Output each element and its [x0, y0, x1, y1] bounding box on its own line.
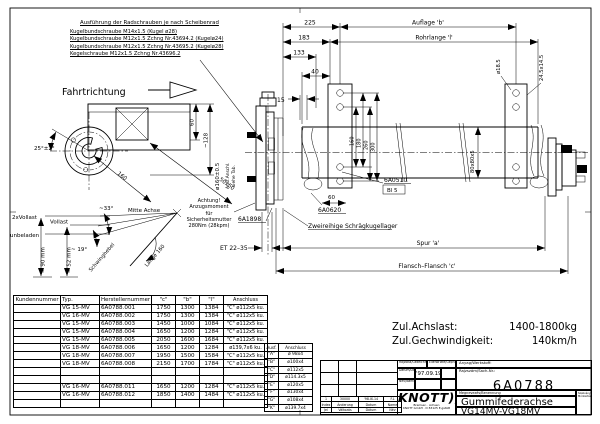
table-cell: 1750 [152, 312, 176, 320]
table-cell: 1650 [152, 328, 176, 336]
drawing-number-label: Rajzszám/Sach-Nr.: [457, 369, 591, 374]
table-cell: "F" [265, 389, 279, 397]
table-cell: 6A0788.004 [100, 328, 152, 336]
wheel-bolt-note-line: Kegelschraube M12x1.5 Zchng Nr.43696.2 [70, 51, 260, 58]
table-cell: 1450 [152, 320, 176, 328]
axle-load-label: Zul.Achslast: [392, 322, 457, 336]
column-header: "c" [152, 296, 176, 305]
empty-cell [441, 379, 456, 390]
dim-et-label: ET 22–35 [220, 245, 248, 252]
table-cell: 1850 [152, 391, 176, 399]
date-label: Dátum/Date [397, 368, 415, 379]
title-block-divider [338, 360, 339, 396]
table-row: VG 15-MV6A0788.003145010001084"C" ø112x5… [14, 320, 268, 328]
table-cell: ø130x4 [279, 389, 313, 397]
table-cell: 1650 [152, 344, 176, 352]
table-cell: 1784 [200, 360, 224, 368]
dim-dia18-label: ø18.5 [496, 59, 502, 74]
column-header: Anschluss [224, 296, 268, 305]
axle-load-row: Zul.Achslast: 1400-1800kg [392, 322, 577, 336]
table-cell: 1950 [152, 352, 176, 360]
table-cell: "C" ø112x5 ku. [224, 391, 268, 399]
hub-cross-section [234, 92, 287, 256]
torque-warning-line: 280Nm (28kpm) [181, 223, 237, 229]
table-cell: ø112x5 [279, 366, 313, 374]
table-row: VG 16-MV6A0788.011165012001284"C" ø112x5… [14, 383, 268, 391]
speed-value: 140km/h [532, 336, 577, 350]
table-cell: 1500 [176, 352, 200, 360]
dim-160-diagonal-label: 160 [116, 171, 128, 183]
schwinghebel-label: Schwinghebel [88, 242, 116, 273]
column-header: "l" [200, 296, 224, 305]
table-cell: VG 18-MV [61, 352, 100, 360]
table-cell [224, 399, 268, 407]
dim-180v-label: 180 [357, 138, 363, 148]
table-cell: "E" [265, 381, 279, 389]
empty-cell [415, 379, 441, 390]
table-cell [224, 376, 268, 384]
table-cell: ø120x5 [279, 381, 313, 389]
dim-19deg-label: ~ 19° [71, 247, 87, 253]
table-cell: VG 15-MV [61, 305, 100, 313]
table-cell: 6A0788.003 [100, 320, 152, 328]
table-row: "B"ø100x4 [265, 359, 313, 367]
table-cell: "G" [265, 397, 279, 405]
side-label-2: Módosítás [578, 395, 590, 398]
bearing-label: Zweireihige Schrägkugellager [308, 223, 398, 230]
part-6a0620-label: 6A0620 [318, 207, 341, 214]
torque-warning-line: Anzugsmoment [181, 204, 237, 210]
table-cell: 6A0788.001 [100, 305, 152, 313]
table-cell: Index [321, 402, 332, 407]
dim-90mm-label: ≈ 90 mm [41, 247, 47, 273]
dim-slot-label: 24.5x14.5 [539, 55, 545, 81]
rohrlange-l-label: Rohrlange 'l' [415, 35, 453, 42]
header-row: Ausf.Anschluss [265, 344, 313, 352]
torque-warning-note: Achtung!AnzugsmomentfürSicherheitsmutter… [181, 198, 237, 229]
table-cell: VG 18-MV [61, 360, 100, 368]
table-cell: 1700 [176, 360, 200, 368]
table-row: VG 18-MV6A0788.007195015001584"C" ø112x5… [14, 352, 268, 360]
table-row: "F"ø130x4 [265, 389, 313, 397]
table-cell: 1284 [200, 328, 224, 336]
dim-128-label: ~128 [204, 132, 210, 148]
dim-60-label: 60 [190, 119, 196, 126]
spec-block: Zul.Achslast: 1400-1800kg Zul.Gechwindig… [392, 322, 577, 350]
mitte-achse-label: Mitte Achse [128, 208, 161, 214]
table-cell: 1600 [176, 336, 200, 344]
ausf-ref-line1: Ausf.Anschl. [225, 162, 231, 189]
axle-load-value: 1400-1800kg [509, 322, 577, 336]
column-header: "b" [176, 296, 200, 305]
revision-table-grid: 130000'98.IX.14F.LIndexÄnderungDatumName… [320, 396, 402, 413]
table-row: VG 18-MV6A0788.006165012001284ø139,7x6 k… [14, 344, 268, 352]
table-cell: "C" ø112x5 ku. [224, 312, 268, 320]
drawn-by-label: Rajzolta/Gezeichnet [397, 360, 427, 368]
spur-a-label: Spur 'a' [417, 240, 440, 247]
table-cell: "C" ø112x5 ku. [224, 336, 268, 344]
blatt-5-label: Bl 5 [387, 188, 398, 194]
table-row: VG 18-MV6A0788.008215017001784"C" ø112x5… [14, 360, 268, 368]
table-cell: 1300 [176, 305, 200, 313]
table-cell: "C" ø112x5 ku. [224, 383, 268, 391]
table-cell: "C" [265, 366, 279, 374]
brand-subline-2: KNOTT GmbH · D 83125 E,gstätt [398, 407, 455, 410]
speed-label: Zul.Gechwindigkeit: [392, 336, 493, 350]
laenge-160-label: Länge 160 [144, 244, 167, 269]
table-cell: 1300 [176, 312, 200, 320]
table-cell [152, 399, 176, 407]
table-cell: VG 16-MV [61, 383, 100, 391]
empty-cell [441, 368, 456, 379]
wheel-bolt-note-line: Kugelbundschraube M14x1.5 (Kugel ø28) [70, 29, 260, 36]
wheel-bolt-note-line: Kugelbundschraube M12x1.5 Zchng Nr.43695… [70, 44, 260, 51]
dim-52mm-label: ≈ 52 mm [67, 247, 73, 273]
anschluss-variants-table-grid: Ausf.Anschluss"A"ø 98x4"B"ø100x4"C"ø112x… [264, 343, 313, 412]
table-cell [14, 320, 61, 328]
wheel-bolt-note-line: Kugelbundschraube M12x1.5 Zchng Nr.43694… [70, 36, 260, 43]
table-cell: "C" ø112x5 ku. [224, 320, 268, 328]
column-header: Herstellernummer [100, 296, 152, 305]
table-cell: VG 15-MV [61, 320, 100, 328]
dim-dia160-label: ø160±0.5 [215, 162, 221, 190]
table-cell [61, 368, 100, 376]
dim-40-label: 40 [311, 69, 319, 76]
table-cell: 6A0788.012 [100, 391, 152, 399]
table-cell [14, 336, 61, 344]
table-cell: VG 16-MV [61, 391, 100, 399]
ausf-ref-line2: siehe Tab. [231, 165, 237, 187]
brand-cell: KNOTT))) Bremsen · Achsen KNOTT GmbH · D… [397, 390, 456, 415]
auflage-b-label: Auflage 'b' [412, 20, 444, 27]
table-cell: 1284 [200, 344, 224, 352]
table-cell: "A" [265, 351, 279, 359]
table-cell: "C" ø112x5 ku. [224, 352, 268, 360]
dim-225-label: 225 [304, 20, 316, 27]
table-cell [14, 305, 61, 313]
side-column-cell: Szabványosítás Módosítás [576, 390, 592, 415]
vollast2-label: 2xVollast [12, 215, 38, 221]
table-cell [224, 368, 268, 376]
table-cell: 6A0788.002 [100, 312, 152, 320]
table-cell [176, 376, 200, 384]
table-cell: 6A0788.005 [100, 336, 152, 344]
table-cell: 2150 [152, 360, 176, 368]
fahrtrichtung-label: Fahrtrichtung [62, 87, 126, 98]
table-row [14, 368, 268, 376]
table-cell: "D" [265, 374, 279, 382]
table-cell: 1684 [200, 336, 224, 344]
table-cell: 6A0788.007 [100, 352, 152, 360]
table-cell: ø108x4 [279, 397, 313, 405]
table-cell: 1384 [200, 305, 224, 313]
table-cell [200, 399, 224, 407]
title-block-divider [320, 372, 397, 373]
table-row: VG 15-MV6A0788.004165012001284"C" ø112x5… [14, 328, 268, 336]
table-cell: "C" ø112x5 ku. [224, 305, 268, 313]
knott-logo-arcs-icon: ))) [449, 390, 456, 405]
revision-table: 130000'98.IX.14F.LIndexÄnderungDatumName… [320, 396, 402, 413]
table-cell: VG 15-MV [61, 328, 100, 336]
speed-row: Zul.Gechwindigkeit: 140km/h [392, 336, 577, 350]
material-label: Anyag/Werkstoff: [456, 360, 592, 368]
anschluss-variants-table: Ausf.Anschluss"A"ø 98x4"B"ø100x4"C"ø112x… [264, 343, 313, 412]
title-block-divider [356, 360, 357, 396]
table-cell: ø 98x4 [279, 351, 313, 359]
table-cell: Változás [332, 407, 359, 412]
table-cell: "B" [265, 359, 279, 367]
vollast-label: Vollast [50, 220, 69, 226]
table-cell [100, 368, 152, 376]
table-cell: 1200 [176, 328, 200, 336]
flansch-c-label: Flansch–Flansch 'c' [398, 263, 456, 270]
table-cell [14, 360, 61, 368]
dim-tube80-label: 80x80x5 [470, 150, 476, 173]
table-cell [14, 376, 61, 384]
table-row: "K"ø139.7x4 [265, 404, 313, 412]
axle-variants-table-grid: KundennummerTyp.Herstellernummer"c""b""l… [13, 295, 268, 408]
table-cell: ø139,7x6 ku. [224, 344, 268, 352]
table-cell: 1200 [176, 344, 200, 352]
date-value: '97.09.19 [415, 368, 441, 379]
table-cell: 6A0788.006 [100, 344, 152, 352]
wheel-bolt-note-lines: Kugelbundschraube M14x1.5 (Kugel ø28)Kug… [70, 29, 260, 58]
table-row: VG 15-MV6A0788.005205016001684"C" ø112x5… [14, 336, 268, 344]
type-range-value: VG14MV-VG18MV [456, 407, 576, 415]
drawing-sheet: Fahrtrichtung 60 ~128 160 50x50 25°±2° 2… [0, 0, 600, 424]
table-cell [200, 376, 224, 384]
header-row: KundennummerTyp.Herstellernummer"c""b""l… [14, 296, 268, 305]
table-cell: VG 16-MV [61, 312, 100, 320]
checked-by-label: Ellenőrizte/Geprüft [427, 360, 456, 368]
dim-60b-label: 60 [328, 195, 335, 201]
table-row: "E"ø120x5 [265, 381, 313, 389]
table-cell [152, 376, 176, 384]
table-cell [61, 376, 100, 384]
table-cell [176, 399, 200, 407]
table-cell: 1200 [176, 383, 200, 391]
dim-25deg-label: 25°±2° [34, 146, 55, 152]
table-cell: 6A0788.011 [100, 383, 152, 391]
table-cell: 1650 [152, 383, 176, 391]
table-cell [61, 399, 100, 407]
table-cell: VG 15-MV [61, 336, 100, 344]
table-cell: 1584 [200, 352, 224, 360]
table-cell [14, 368, 61, 376]
wheel-bolt-note-title: Ausführung der Radschrauben je nach Sche… [80, 20, 260, 27]
unbeladen-label: unbeladen [10, 233, 40, 239]
dim-300v-label: 300 [371, 142, 377, 152]
table-cell: 1284 [200, 383, 224, 391]
table-cell: 1750 [152, 305, 176, 313]
table-row: "A"ø 98x4 [265, 351, 313, 359]
table-row: JelVáltozásDátumNév [321, 407, 402, 412]
table-cell [176, 368, 200, 376]
table-row [14, 399, 268, 407]
dim-183-label: 183 [298, 35, 310, 42]
dim-260v-label: 260 [364, 140, 370, 150]
table-cell: "C" ø112x5 ku. [224, 360, 268, 368]
table-row: "C"ø112x5 [265, 366, 313, 374]
note-leader-lines [200, 60, 263, 142]
column-header: Kundennummer [14, 296, 61, 305]
dim-133-label: 133 [293, 50, 305, 57]
table-cell: ø100x4 [279, 359, 313, 367]
table-cell [14, 383, 61, 391]
table-cell: Dátum [359, 407, 384, 412]
table-cell [14, 352, 61, 360]
drawing-number-cell: Rajzszám/Sach-Nr.: 6A0788 [456, 368, 592, 390]
table-row [14, 376, 268, 384]
table-row: VG 15-MV6A0788.001175013001384"C" ø112x5… [14, 305, 268, 313]
table-cell: "K" [265, 404, 279, 412]
table-cell: 6A0788.008 [100, 360, 152, 368]
table-row: "G"ø108x4 [265, 397, 313, 405]
table-cell [14, 312, 61, 320]
table-cell [14, 399, 61, 407]
table-cell [100, 399, 152, 407]
designation-value: Gummifederachse [456, 396, 576, 407]
table-row: "D"ø114.3x5 [265, 374, 313, 382]
column-header: Ausf. [265, 344, 279, 352]
table-cell [200, 368, 224, 376]
dim-15-label: 15 [277, 97, 285, 104]
table-cell [100, 376, 152, 384]
table-cell: 1000 [176, 320, 200, 328]
table-cell: 2050 [152, 336, 176, 344]
table-cell: 1384 [200, 312, 224, 320]
table-cell: VG 18-MV [61, 344, 100, 352]
wheel-bolt-note: Ausführung der Radschrauben je nach Sche… [70, 20, 260, 58]
axle-front-view [245, 23, 588, 274]
table-row: VG 16-MV6A0788.012185014001484"C" ø112x5… [14, 391, 268, 399]
table-cell [14, 328, 61, 336]
table-cell: Jel [321, 407, 332, 412]
column-header: Typ. [61, 296, 100, 305]
column-header: Anschluss [279, 344, 313, 352]
name-label: Név/Name [397, 379, 415, 390]
part-6a0510-label: 6A0510 [384, 177, 407, 184]
dim-160v-label: 160 [350, 136, 356, 146]
table-cell: ø139.7x4 [279, 404, 313, 412]
table-cell: "C" ø112x5 ku. [224, 328, 268, 336]
table-cell [14, 391, 61, 399]
dim-33deg-label: ~33° [99, 206, 114, 212]
table-cell [14, 344, 61, 352]
table-row: VG 16-MV6A0788.002175013001384"C" ø112x5… [14, 312, 268, 320]
part-6a1898-label: 6A1898 [238, 216, 261, 223]
table-cell: 1400 [176, 391, 200, 399]
title-block-divider [320, 384, 397, 385]
table-cell [152, 368, 176, 376]
drawing-number-value: 6A0788 [457, 379, 591, 391]
table-cell: 1084 [200, 320, 224, 328]
table-cell: 1484 [200, 391, 224, 399]
table-cell: ø114.3x5 [279, 374, 313, 382]
axle-variants-table: KundennummerTyp.Herstellernummer"c""b""l… [13, 295, 268, 408]
